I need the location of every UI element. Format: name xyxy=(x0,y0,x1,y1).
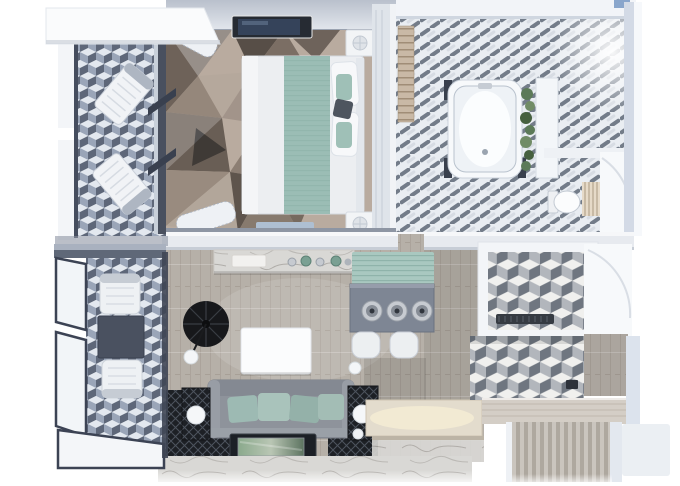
outer-wall-highlight xyxy=(634,2,642,236)
floorplan-render xyxy=(0,0,680,486)
glass-panel xyxy=(56,258,86,330)
pendant-light xyxy=(362,301,382,321)
teal-cushion xyxy=(227,395,259,424)
bathtub xyxy=(444,80,526,178)
sphere-decor xyxy=(349,362,361,374)
wood-step xyxy=(482,398,628,424)
pendant-light xyxy=(412,301,432,321)
toilet xyxy=(548,191,580,213)
corridor-floor xyxy=(512,422,612,482)
bed xyxy=(242,56,364,214)
sphere-lamp xyxy=(184,350,198,364)
entry-slab xyxy=(622,424,670,476)
bathroom-top-wall-edge xyxy=(396,16,636,19)
corridor-wall-right xyxy=(610,422,622,482)
wall-switch xyxy=(566,380,578,389)
teal-cushion xyxy=(258,393,290,421)
glass-panel xyxy=(56,332,86,436)
teal-cushion xyxy=(318,394,344,420)
railing-cap-light xyxy=(54,244,166,250)
bathroom-doorway xyxy=(398,234,424,250)
wood-shelf xyxy=(398,26,414,122)
teal-pillow xyxy=(336,122,352,148)
faucet xyxy=(478,83,492,89)
floorplan-canvas xyxy=(0,0,680,486)
armchair xyxy=(100,274,140,314)
square-side-table xyxy=(98,316,144,358)
under-counter-light xyxy=(370,406,474,430)
room-balcony-lower xyxy=(54,244,168,468)
towel-ladder xyxy=(582,182,600,216)
kitchen-island xyxy=(366,400,484,462)
bar-stool xyxy=(352,332,380,358)
bathroom-right-wall xyxy=(624,2,634,236)
pendant-light xyxy=(387,301,407,321)
tray xyxy=(232,255,266,267)
bedroom-tv xyxy=(232,16,312,38)
room-living xyxy=(158,250,484,486)
right-outer-wall xyxy=(626,336,640,424)
armchair xyxy=(102,360,142,398)
shower-panel xyxy=(536,78,558,178)
bar-stool xyxy=(390,332,418,358)
teal-area-rug xyxy=(352,252,434,285)
wardrobe-partition xyxy=(372,4,390,234)
dark-pillow xyxy=(332,98,353,119)
teal-pillow xyxy=(336,74,352,100)
room-shower xyxy=(478,242,632,340)
coffee-table xyxy=(241,328,311,374)
living-window-mullion xyxy=(162,252,168,458)
shower-door-zone xyxy=(584,244,632,338)
railing-cap xyxy=(54,250,166,258)
drain xyxy=(482,149,488,155)
balcony-rail xyxy=(74,40,78,238)
teal-cushion xyxy=(289,395,322,424)
sofa xyxy=(208,380,354,438)
bar-table xyxy=(350,284,434,332)
wire-side-table-left xyxy=(182,388,210,440)
sideboard xyxy=(214,250,354,275)
sphere-lamp xyxy=(187,406,205,424)
bathroom-top-wall xyxy=(396,0,636,16)
awning-roof xyxy=(46,8,220,44)
nightstand-top xyxy=(346,30,374,56)
entry-floor xyxy=(470,336,584,400)
room-bathroom xyxy=(396,0,674,236)
